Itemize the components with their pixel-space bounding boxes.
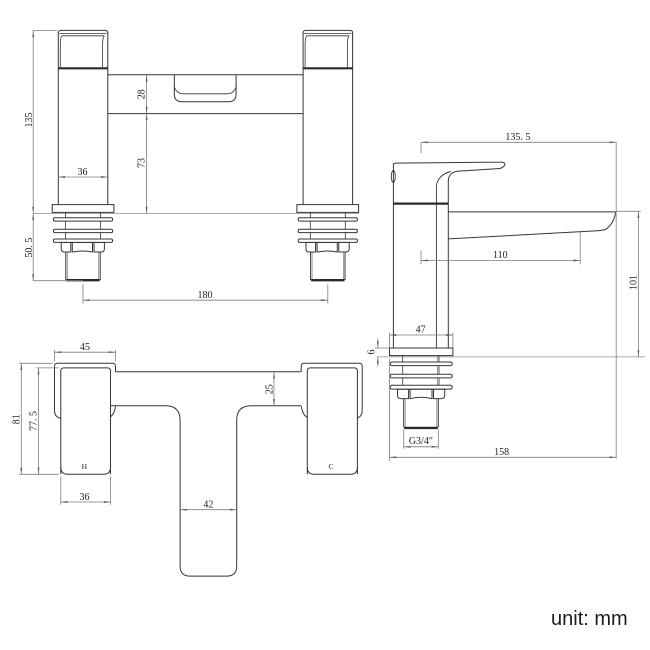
svg-text:G3/4″: G3/4″: [409, 436, 433, 447]
svg-text:110: 110: [493, 250, 508, 261]
svg-text:135. 5: 135. 5: [505, 132, 530, 143]
svg-text:77. 5: 77. 5: [29, 411, 40, 431]
svg-text:101: 101: [628, 275, 639, 290]
svg-text:81: 81: [11, 414, 22, 424]
svg-text:C: C: [328, 462, 333, 471]
svg-text:45: 45: [80, 342, 90, 353]
svg-text:25: 25: [265, 384, 276, 394]
svg-text:36: 36: [80, 492, 90, 503]
svg-text:47: 47: [416, 324, 426, 335]
svg-text:42: 42: [203, 500, 213, 511]
svg-text:unit: mm: unit: mm: [551, 608, 628, 630]
svg-text:50. 5: 50. 5: [24, 238, 35, 258]
svg-text:6: 6: [366, 350, 377, 355]
svg-text:36: 36: [78, 167, 88, 178]
svg-text:158: 158: [494, 447, 509, 458]
svg-text:H: H: [82, 462, 88, 471]
svg-text:180: 180: [198, 290, 213, 301]
svg-text:28: 28: [137, 89, 148, 99]
svg-text:73: 73: [137, 158, 148, 168]
svg-text:135: 135: [24, 113, 35, 128]
